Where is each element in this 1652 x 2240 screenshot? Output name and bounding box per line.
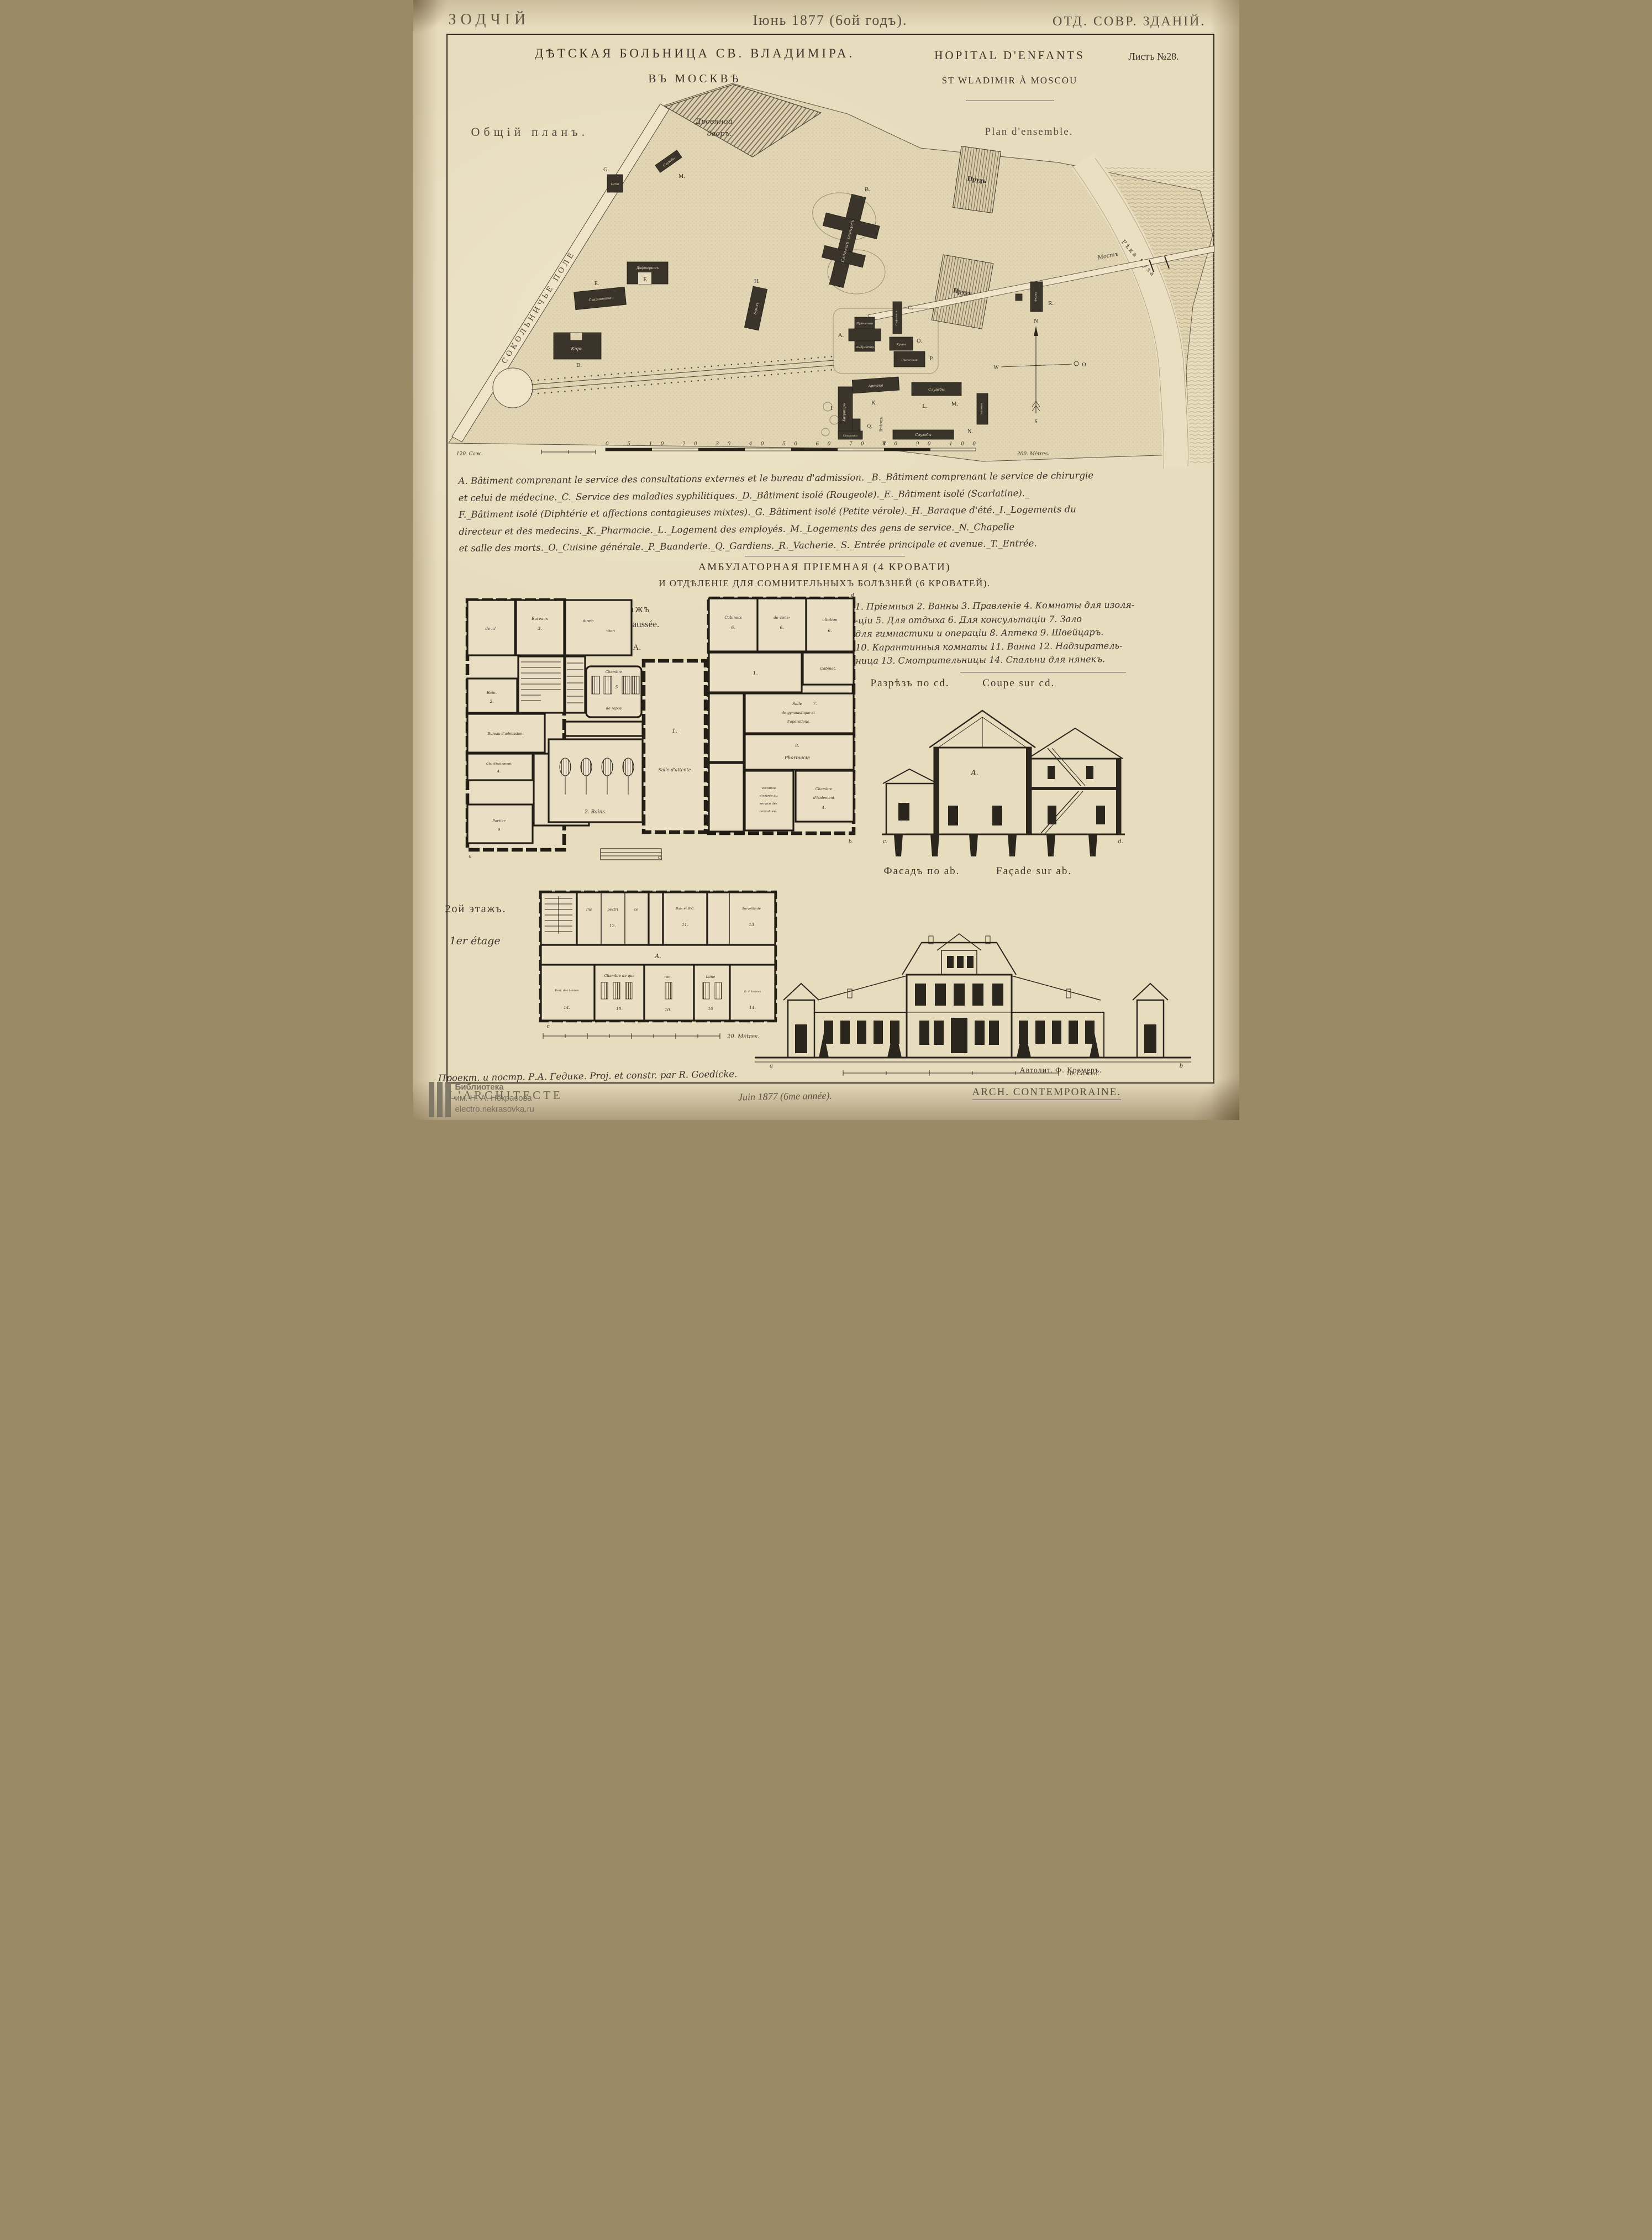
letter-l: L. [922, 403, 928, 409]
letter-m2: М. [951, 401, 958, 407]
sluzhby-mid-label: Службы [928, 387, 945, 392]
repos-room: Chambre 5 de repos [586, 666, 641, 717]
footer-series: ARCH. CONTEMPORAINE. [972, 1086, 1122, 1100]
room-de-cons: de cons- [774, 616, 790, 620]
room-operations: d'opérations. [786, 719, 809, 724]
letter-p: Р. [929, 356, 933, 362]
sluzhby-bottom-label: Службы [915, 433, 932, 437]
room-vest2-4: consul. ext. [759, 810, 777, 813]
room-num6c: 6. [828, 628, 832, 633]
facade-left-pavilion [783, 984, 819, 1058]
letter-b: В. [864, 186, 870, 193]
kitchen-label: Кухня [896, 343, 906, 346]
letter-e: Е. [594, 281, 599, 287]
site-plan-drawing: Рѣка Яуза СОКОЛЬНИЧЬЕ ПОЛЕ Дровяной двор… [448, 77, 1214, 472]
section-caption-fr: Coupe sur cd. [982, 677, 1055, 689]
vjezd-label: Въѣздъ [879, 417, 883, 432]
compass-n: N [1034, 318, 1038, 324]
facade-caption-ru: Фасадъ по ab. [884, 865, 960, 877]
room-num6b: 6. [780, 625, 783, 630]
storozh-label: Сторожъ [843, 434, 857, 438]
section-caption-ru: Разрѣзъ по cd. [871, 677, 950, 689]
watermark-line2: им. Н. А. Некрасова [455, 1093, 534, 1104]
floor2-corner-c: c [546, 1024, 549, 1029]
room-ch-isolement: Ch. d'isolement [486, 763, 512, 766]
stairs-floor1 [565, 656, 585, 713]
ward-title-line1: АМБУЛАТОРНАЯ ПРІЕМНАЯ (4 КРОВАТИ) [601, 561, 1049, 574]
section-main-hall [929, 711, 1035, 834]
room-num1: 1. [753, 671, 758, 677]
title-ru-line1: ДѢТСКАЯ БОЛЬНИЦА СВ. ВЛАДИМІРА. [502, 46, 888, 61]
diphtheria-building: Дифтеритъ F. [627, 262, 668, 284]
letter-g: G. [603, 167, 609, 173]
kor-label: Корь. [570, 346, 583, 351]
chapel-label: Часовня [980, 403, 983, 414]
title-fr-line1: HOPITAL D'ENFANTS [919, 49, 1101, 62]
floor2-caption-ru: 2ой этажъ. [445, 903, 507, 916]
room-num1-hall: 1. [672, 728, 677, 734]
room-cabinet: Cabinet. [820, 666, 836, 671]
room-tion: -tion [606, 629, 615, 633]
room-ins: Ins [585, 907, 592, 912]
facade-caption-fr: Façade sur ab. [996, 865, 1072, 877]
letter-f: F. [643, 277, 647, 283]
ospa-label: Оспа [611, 183, 618, 186]
room-de-repos: de repos [606, 706, 622, 711]
room-gym: de gymnastique et [782, 711, 815, 715]
section-drawing: А. c. d. [882, 695, 1125, 861]
room-dort-bonnes: Dort. des bonnes [554, 989, 579, 992]
floor2-caption-fr: 1er étage [450, 935, 501, 947]
facade-drawing: 10. Сажен. a b [705, 907, 1213, 1081]
issue-date: Іюнь 1877 (6ой годъ). [714, 12, 946, 29]
room-pharmacie: Pharmacie [784, 755, 810, 761]
corner-b: b. [848, 839, 853, 845]
legend-russian: 1. Пріемныя 2. Ванны 3. Правленіе 4. Ком… [855, 598, 1237, 668]
room-num7: 7. [813, 702, 817, 706]
waiting-hall: 1. Salle d'attente [644, 661, 706, 832]
lithograph-plate: ЗОДЧІЙ Іюнь 1877 (6ой годъ). ОТД. СОВР. … [413, 0, 1239, 1120]
compass-s: S [1034, 419, 1038, 425]
journal-masthead: ЗОДЧІЙ [449, 11, 530, 29]
kvartiry-label: Квартиры [843, 403, 846, 422]
room-ultation: ultation [822, 618, 838, 622]
room-num11: 11. [682, 922, 688, 927]
room-num2: 2. [489, 699, 493, 704]
ward-title-line2: И ОТДѢЛЕНІЕ ДЛЯ СОМНИТЕЛЬНЫХЪ БОЛѢЗНЕЙ (… [601, 578, 1049, 589]
room-num8: 8. [795, 743, 799, 748]
sheet-number: Листъ №28. [1129, 51, 1179, 62]
room-ran: ran- [664, 975, 671, 979]
room-pectri: pectri [607, 907, 618, 912]
wood-yard-label-1: Дровяной [695, 118, 733, 126]
legend-separator [745, 556, 905, 556]
letter-c: С. [908, 305, 913, 311]
legend-ru-line5: ница 13. Смотрительницы 14. Спальни для … [855, 652, 1237, 668]
floor1-plan-drawing: de la' Bureaux 3. Bain. 2. Bureau d'admi… [466, 596, 855, 862]
facade-right-pavilion [1133, 984, 1168, 1058]
room-ce: ce [634, 907, 638, 912]
room-num3: 3. [538, 626, 541, 631]
corner-d: d [851, 593, 854, 598]
porch-steps-center [601, 849, 661, 860]
room-vest2-3: service des [760, 802, 777, 806]
watermark-line3: electro.nekrasovka.ru [455, 1104, 534, 1115]
room-bain: Bain. [486, 691, 496, 695]
ferma-label: Ферма [1034, 292, 1038, 301]
section-stair-wing [1028, 728, 1123, 834]
room-bains: 2. Bains. [584, 809, 607, 815]
syphilis-label: Сифилисъ [895, 311, 898, 325]
pond-upper: Прудъ [953, 146, 1001, 213]
room-num4: 4. [496, 769, 500, 774]
corner-a: a [469, 854, 471, 859]
foundation-piers [894, 834, 1097, 856]
room-direc: direc- [582, 619, 594, 623]
room-bain-wc: Bain et W.C. [675, 907, 695, 911]
section-caption: Разрѣзъ по cd. Coupe sur cd. [871, 677, 1055, 690]
room-num6a: 6. [731, 625, 735, 630]
facade-corner-b: b [1179, 1063, 1182, 1069]
letter-m-top: М. [678, 173, 685, 180]
room-num14a: 14. [564, 1005, 570, 1010]
room-chambre-qua: Chambre de qua [604, 974, 634, 978]
letter-k: К. [871, 399, 876, 406]
room-de-la: de la' [485, 627, 496, 631]
letter-r: R. [1048, 300, 1053, 307]
room-vest2-2: d'entrée au [759, 794, 777, 798]
library-watermark: Библиотека им. Н. А. Некрасова electro.n… [429, 1082, 534, 1117]
room-admission: Bureau d'admission. [487, 732, 523, 736]
letter-n: N. [967, 429, 973, 435]
compass-w: W [993, 365, 999, 371]
section-letter-a: А. [970, 769, 978, 776]
room-vest2-1: Vestibule [761, 787, 776, 790]
ambulatoria-label: Амбулатор. [855, 345, 875, 349]
diphtherite-label: Дифтеритъ [635, 266, 658, 270]
room-num10b: 10. [665, 1007, 671, 1012]
compass-o: O [1082, 362, 1086, 368]
section-corner-c: c. [882, 839, 887, 845]
facade-caption: Фасадъ по ab. Façade sur ab. [884, 865, 1072, 877]
legend-ru-separator [960, 672, 1126, 672]
scale-sazhen-label: 120. Саж. [456, 451, 482, 457]
room-chambre2: Chambre [815, 787, 832, 791]
room-num10a: 10. [616, 1006, 623, 1011]
floor1-right-wing: Cabinets 6. de cons- 6. ultation 6. 1. C… [709, 598, 854, 833]
facade-corner-a: a [770, 1063, 773, 1069]
lithographer-credit: Автолит. Ф. Кремеръ. [1020, 1066, 1102, 1075]
priemnaya-label: Пріемная [856, 322, 873, 325]
wood-yard-label-2: дворъ. [707, 130, 732, 138]
scale-metres-label: 200. Mètres. [1016, 451, 1049, 457]
corner-c: c. [658, 855, 662, 860]
room-num5: 5 [615, 685, 618, 690]
bains-room: 2. Bains. [549, 739, 643, 822]
facade-central-block [902, 934, 1016, 1058]
room-bureaux: Bureaux [531, 617, 548, 621]
letter-h: Н. [754, 278, 760, 285]
room-salle7: Salle [792, 702, 802, 706]
room-isolement2: d'isolement [813, 796, 834, 800]
letter-d: D. [576, 362, 582, 369]
letter-a: А. [838, 332, 844, 339]
room-num9: 9 [497, 828, 500, 832]
laundry-label: Прачечная [901, 359, 917, 362]
room-salle-attente: Salle d'attente [658, 767, 691, 772]
floor2-corridor-letter: A. [654, 953, 661, 960]
section-annex [883, 769, 938, 834]
section-corner-d: d. [1118, 839, 1123, 845]
letter-o: О. [917, 338, 922, 344]
legend-french: A. Bâtiment comprenant le service des co… [458, 466, 1203, 557]
room-num12: 12. [609, 923, 616, 928]
room-chambre: Chambre [605, 670, 622, 674]
room-num4b: 4. [821, 806, 825, 810]
watermark-line1: Библиотека [455, 1082, 534, 1093]
room-cabinets: Cabinets [724, 616, 742, 620]
footer-date: Juin 1877 (6me année). [738, 1090, 832, 1103]
room-portier: Portier [492, 819, 506, 823]
library-logo-icon [429, 1082, 451, 1117]
letter-q: Q. [867, 423, 872, 429]
section-header: ОТД. СОВР. ЗДАНІЙ. [1016, 14, 1206, 29]
